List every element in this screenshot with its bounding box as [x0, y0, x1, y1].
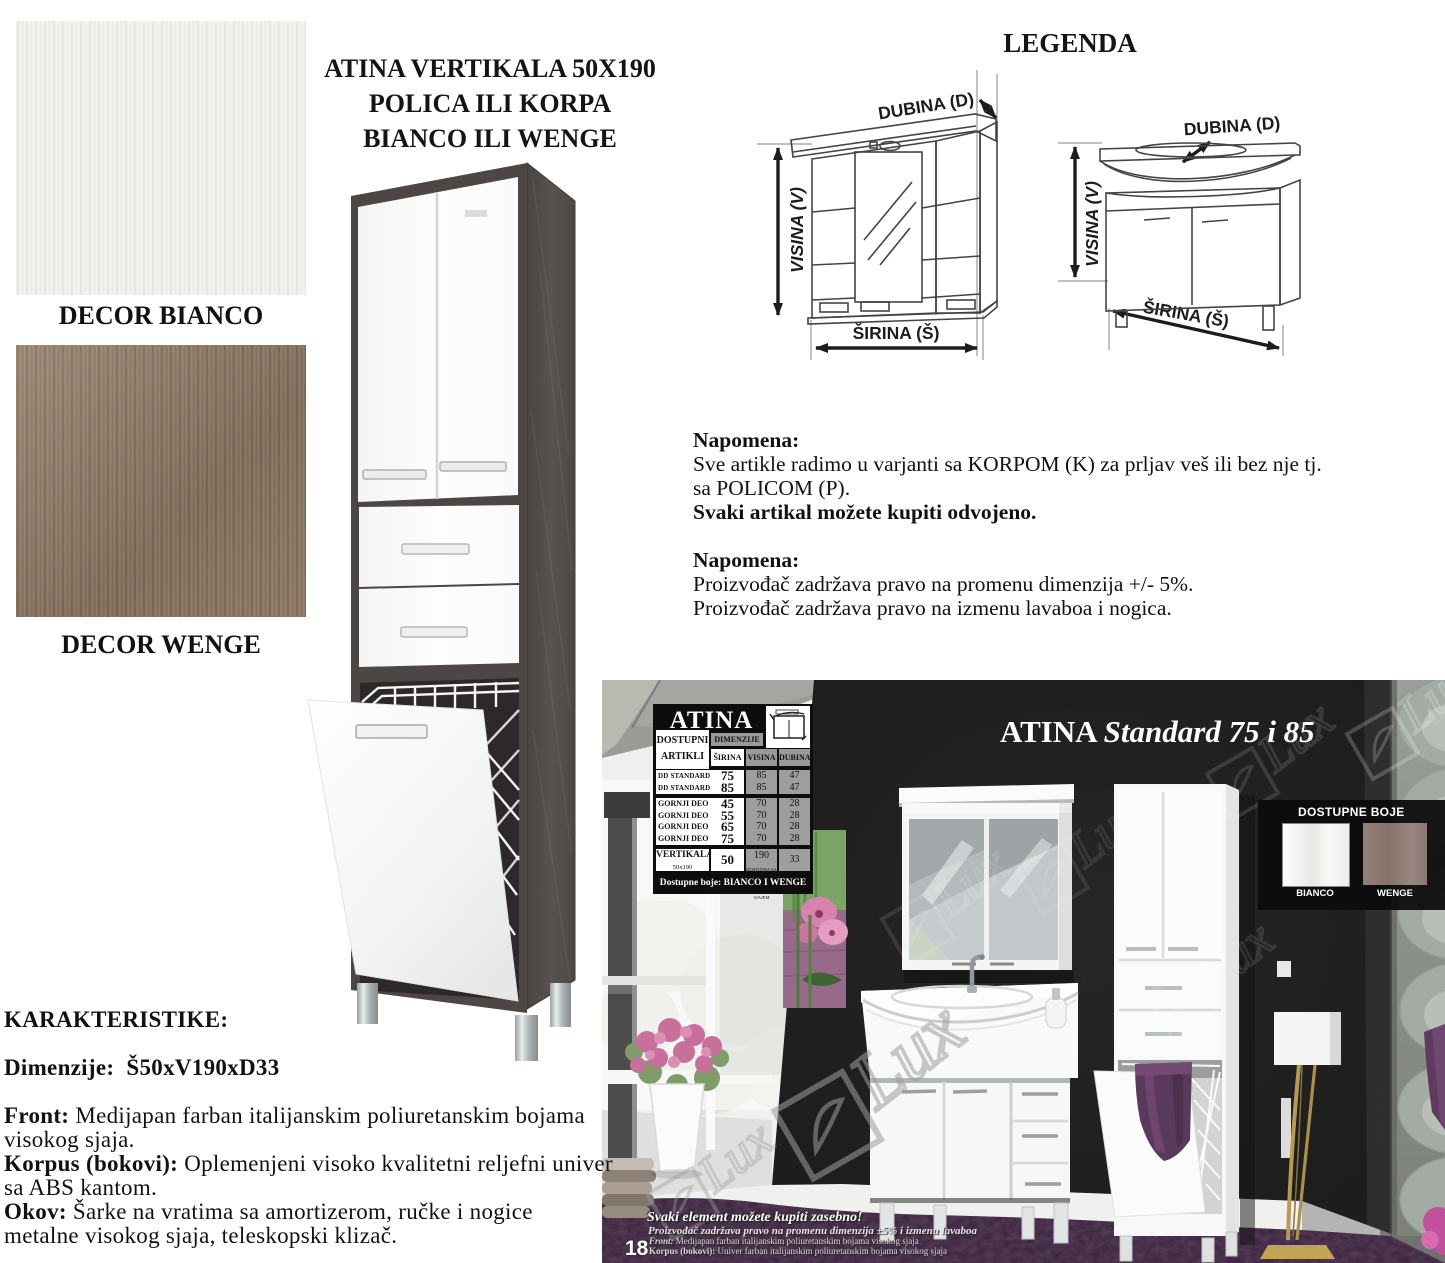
- svg-text:DUBINA (D): DUBINA (D): [877, 89, 976, 124]
- svg-text:VISINA (V): VISINA (V): [787, 187, 807, 273]
- svg-text:DUBINA (D): DUBINA (D): [1183, 113, 1281, 140]
- svg-text:VISINA (V): VISINA (V): [1082, 181, 1102, 267]
- svg-text:ŠIRINA (Š): ŠIRINA (Š): [853, 322, 940, 343]
